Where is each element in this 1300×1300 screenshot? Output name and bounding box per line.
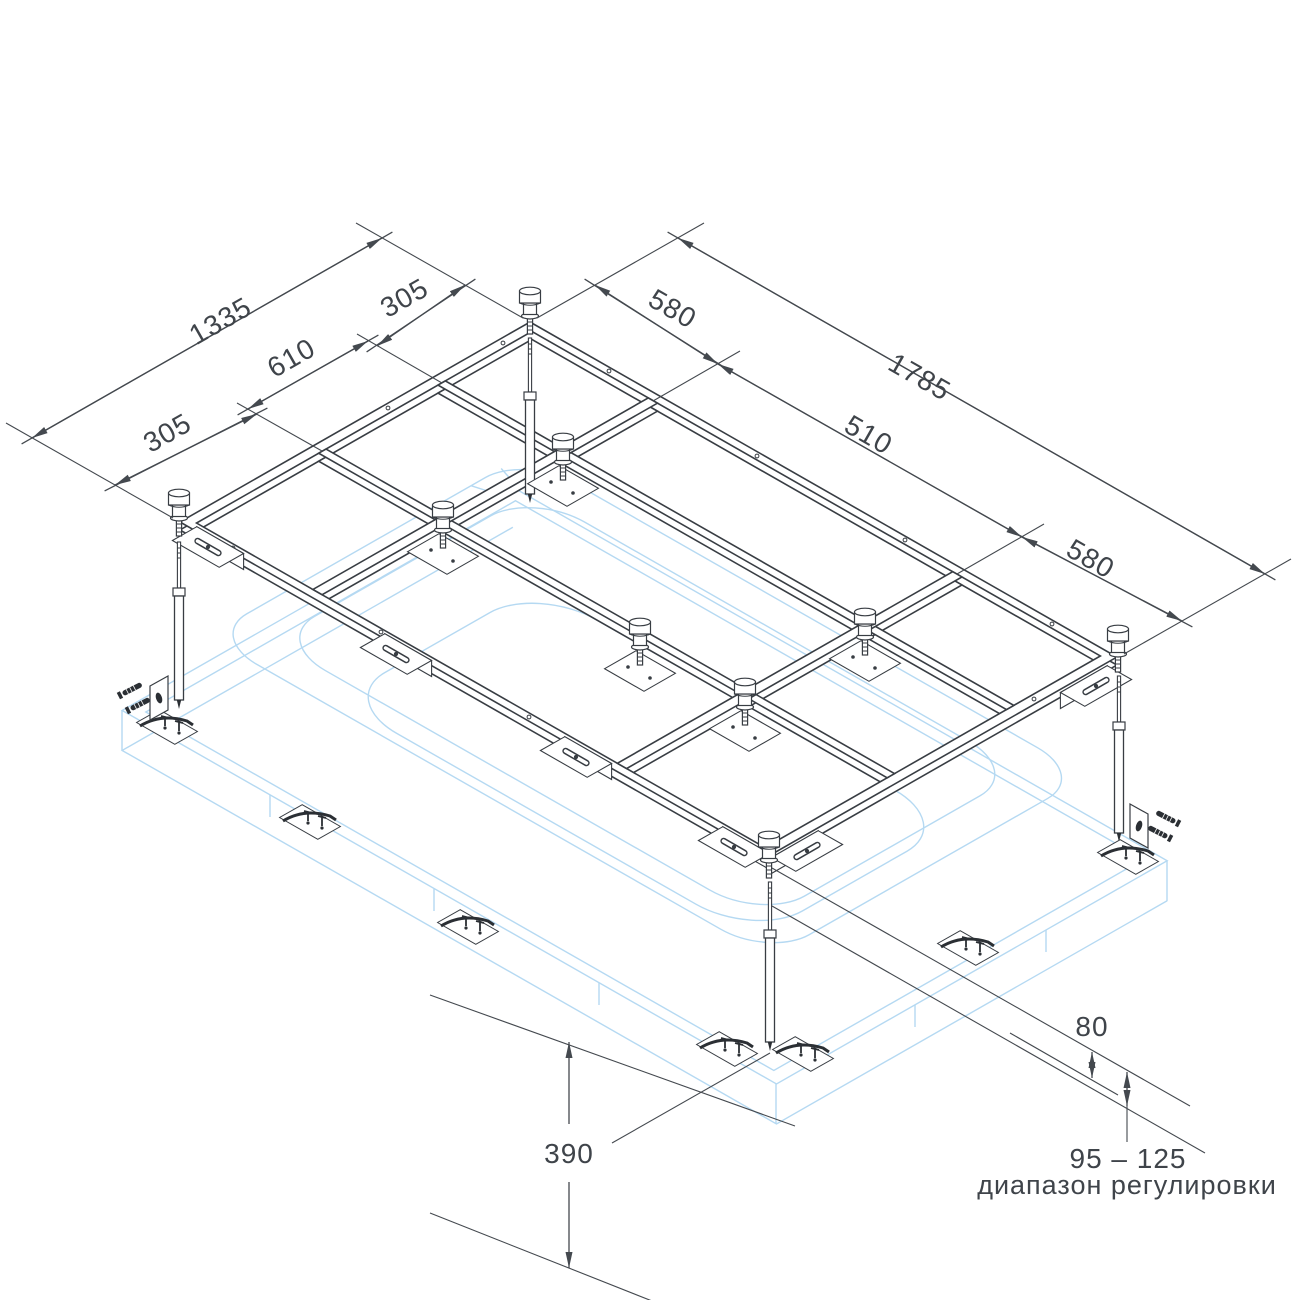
- technical-drawing-canvas: 1335 305 610 305 580 1785 510 5: [0, 0, 1300, 1300]
- dim-label-390: 390: [544, 1138, 594, 1169]
- leg-right: [1113, 676, 1125, 842]
- angle-bracket: [540, 737, 611, 780]
- floor-anchor: [697, 1032, 758, 1067]
- dim-label-305-top: 305: [375, 272, 434, 324]
- tub-skirt-edges: [122, 710, 1167, 1124]
- dim-label-1335: 1335: [184, 291, 257, 351]
- leg-left: [173, 542, 185, 709]
- dim-label-610: 610: [262, 332, 321, 384]
- dim-label-80: 80: [1075, 1011, 1108, 1042]
- dimension-length-left: 580: [537, 223, 740, 401]
- dimension-width-top: 305: [367, 272, 476, 352]
- dim-label-range-note: диапазон регулировки: [977, 1170, 1277, 1200]
- dim-label-580-right: 580: [1061, 533, 1120, 585]
- wall-bracket: [1130, 804, 1181, 848]
- dimension-adjustment: 80 95 – 125 диапазон регулировки: [772, 868, 1277, 1200]
- floor-anchor: [137, 710, 198, 745]
- angle-bracket: [172, 527, 243, 570]
- dim-label-1785: 1785: [883, 347, 956, 407]
- floor-anchor: [1098, 840, 1159, 875]
- floor-anchor: [438, 910, 499, 945]
- wall-bracket: [117, 676, 168, 720]
- dim-label-510: 510: [839, 409, 898, 461]
- frame-rail-2: [319, 449, 895, 778]
- floor-anchor: [938, 931, 999, 966]
- floor-anchor: [280, 805, 341, 840]
- leg-back: [524, 338, 536, 503]
- angle-bracket: [360, 634, 431, 677]
- frame-rail-1: [438, 381, 1014, 710]
- dim-label-305-bottom: 305: [138, 407, 197, 459]
- dim-label-580-left: 580: [643, 283, 702, 335]
- bathtub-frame-diagram: 1335 305 610 305 580 1785 510 5: [0, 0, 1300, 1300]
